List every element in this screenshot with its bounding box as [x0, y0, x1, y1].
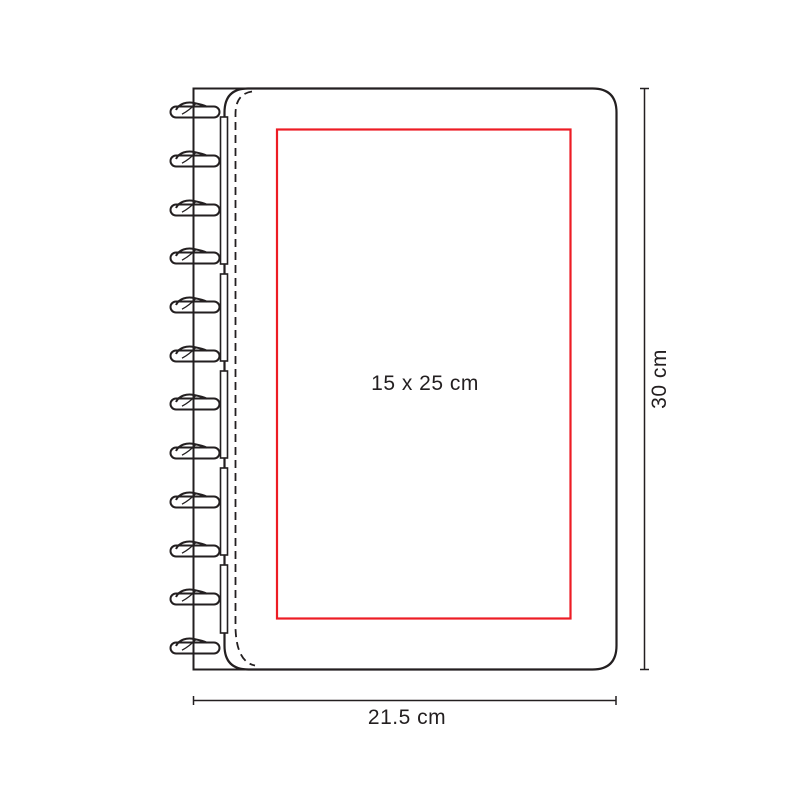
height-dimension: 30 cm: [640, 89, 671, 670]
width-dimension: 21.5 cm: [194, 696, 617, 729]
page-edge-segment: [221, 565, 228, 633]
page-edge-segment: [221, 117, 228, 264]
print-area-label: 15 x 25 cm: [371, 372, 479, 395]
page-edge-segment: [221, 274, 228, 361]
diagram-canvas: 15 x 25 cm 30 cm 21.5 cm: [0, 0, 800, 800]
page-edge-segment: [221, 468, 228, 555]
page-edge-strip: [221, 117, 228, 633]
page-edge-segment: [221, 371, 228, 458]
width-dimension-label: 21.5 cm: [368, 706, 446, 729]
notebook-dimension-diagram: 15 x 25 cm 30 cm 21.5 cm: [0, 0, 800, 800]
height-dimension-label: 30 cm: [648, 349, 671, 409]
